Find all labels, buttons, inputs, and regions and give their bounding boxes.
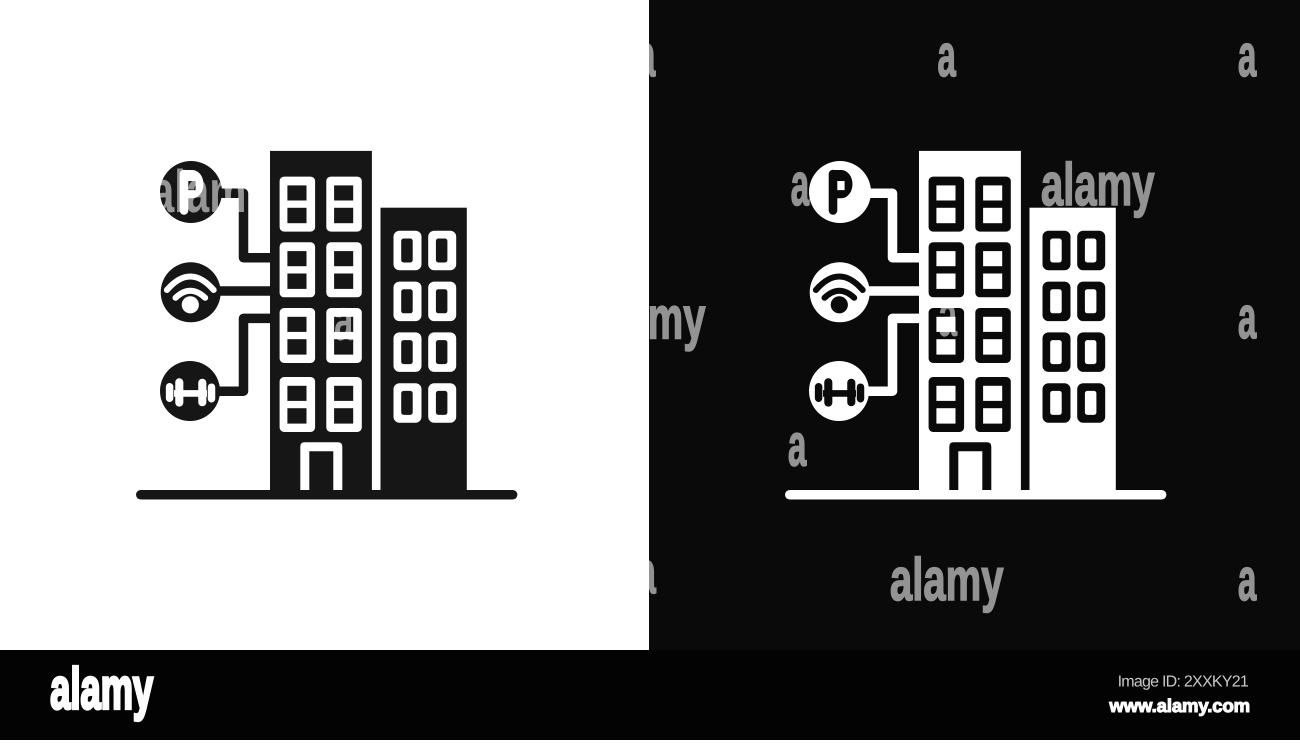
svg-text:a: a (1238, 22, 1257, 89)
svg-text:a: a (791, 151, 810, 218)
svg-text:a: a (649, 539, 656, 606)
svg-text:Image ID: 2XXKY21: Image ID: 2XXKY21 (1118, 674, 1249, 691)
svg-text:a: a (788, 412, 807, 479)
svg-text:alamy: alamy (1041, 151, 1155, 218)
svg-text:a: a (938, 22, 957, 89)
svg-text:alamy: alamy (151, 158, 270, 225)
svg-text:www.alamy.com: www.alamy.com (1108, 695, 1250, 716)
svg-text:a: a (1238, 284, 1257, 351)
svg-text:a: a (938, 282, 958, 349)
svg-text:a: a (1238, 546, 1257, 613)
svg-text:a: a (334, 286, 354, 353)
svg-text:alamy: alamy (50, 656, 153, 721)
svg-text:a: a (649, 22, 656, 89)
svg-text:alamy: alamy (649, 285, 706, 352)
svg-text:alamy: alamy (890, 546, 1004, 613)
